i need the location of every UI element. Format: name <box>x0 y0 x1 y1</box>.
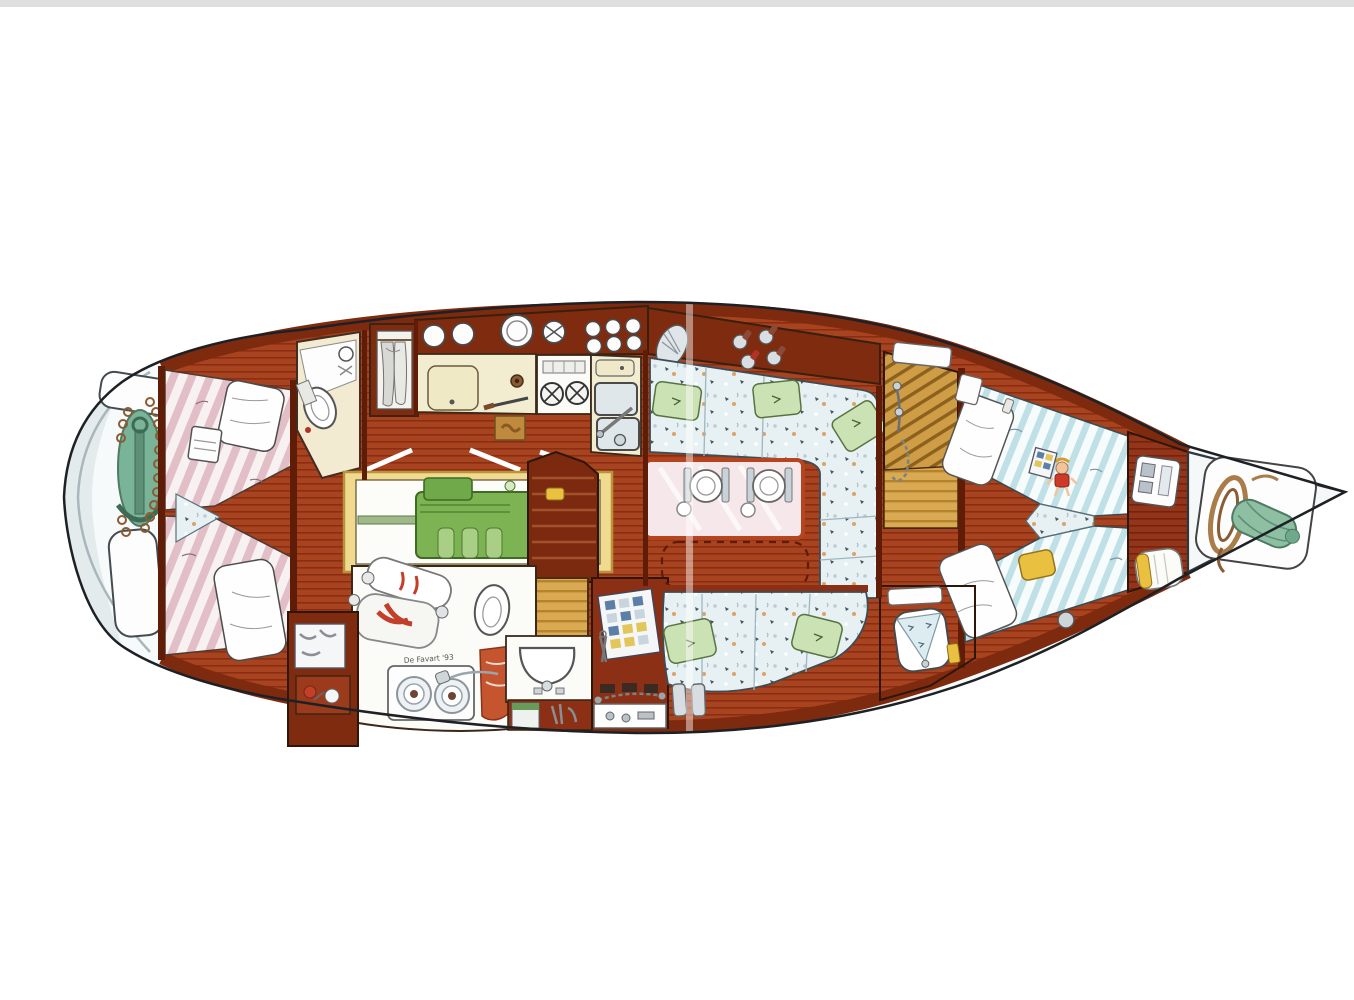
slat-steps <box>884 466 958 528</box>
grinder-top <box>515 379 519 383</box>
regulator <box>436 606 448 618</box>
shelf-item <box>600 684 615 693</box>
engine-air-filter <box>424 478 472 500</box>
pilot-berth: Slatted steps / stowage with rigging har… <box>884 342 958 528</box>
tool-locker: Tool locker with pegboard <box>592 578 668 728</box>
jar-lid <box>512 703 539 710</box>
shackle <box>895 408 903 416</box>
shelf-item <box>644 684 658 693</box>
round-fitting <box>325 689 339 703</box>
engine-cap <box>505 481 515 491</box>
fender-roll <box>1134 547 1185 591</box>
porthole-icon <box>452 323 474 345</box>
aft-pillow-top <box>216 379 286 454</box>
metal-part <box>638 712 654 719</box>
stern-bulkhead <box>158 366 165 660</box>
decorated-basin <box>892 607 952 674</box>
faucet-base <box>597 431 604 438</box>
radio-icon <box>188 426 222 463</box>
tank-valve <box>362 572 374 584</box>
small-sink <box>596 360 634 376</box>
scan-strip-top <box>0 0 1354 7</box>
latch-yellow <box>546 488 564 500</box>
chain-end <box>659 693 666 700</box>
steps-dark <box>528 452 598 582</box>
stern-seat-locker <box>107 528 164 638</box>
regulator <box>349 595 360 606</box>
yacht-floorplan-illustration: sailboat interior floor plan Stern lazar… <box>0 0 1354 1000</box>
metal-part <box>622 714 630 722</box>
anchor-shank <box>135 430 144 514</box>
engine-cylinder <box>486 528 502 558</box>
door-handle-yellow <box>947 643 961 663</box>
hanging-locker: Hanging locker with clothes <box>370 324 418 416</box>
scan-fold-line <box>686 296 693 740</box>
board-hole <box>450 400 455 405</box>
settee-trim <box>664 585 868 592</box>
faucet-handle <box>534 688 542 694</box>
large-pot-icon <box>501 315 533 347</box>
red-tool <box>304 686 316 698</box>
green-pillow <box>752 380 801 419</box>
engine-cylinder <box>462 528 478 558</box>
shackle <box>893 382 901 390</box>
red-fitting <box>305 427 311 433</box>
washer-hub <box>448 692 456 700</box>
chain-end <box>595 697 602 704</box>
drain <box>620 366 624 370</box>
drain <box>615 435 626 446</box>
pegboard <box>598 589 660 660</box>
engine-cylinder <box>438 528 454 558</box>
deck-fill-cap <box>1058 612 1074 628</box>
metal-part <box>606 712 614 720</box>
basin-faucet <box>542 681 552 691</box>
bow: Anchor locker with coiled warp and sail … <box>1128 432 1345 592</box>
green-pillow <box>652 381 702 421</box>
floorplan-page: sailboat interior floor plan Stern lazar… <box>0 0 1354 1000</box>
washer-hub <box>410 690 418 698</box>
shower-room: Washroom with basin and lockers <box>506 636 592 730</box>
cup-stowage-icons <box>586 319 642 354</box>
hatch-white <box>888 587 943 606</box>
windlass-box <box>1131 455 1181 508</box>
faucet-handle <box>556 688 564 694</box>
shelf-item <box>622 683 637 692</box>
knife-handle <box>484 405 494 408</box>
stowage-cabinet <box>288 612 358 746</box>
basin-icon <box>339 347 353 361</box>
porthole-icon <box>423 325 445 347</box>
propeller-shaft <box>358 516 418 524</box>
